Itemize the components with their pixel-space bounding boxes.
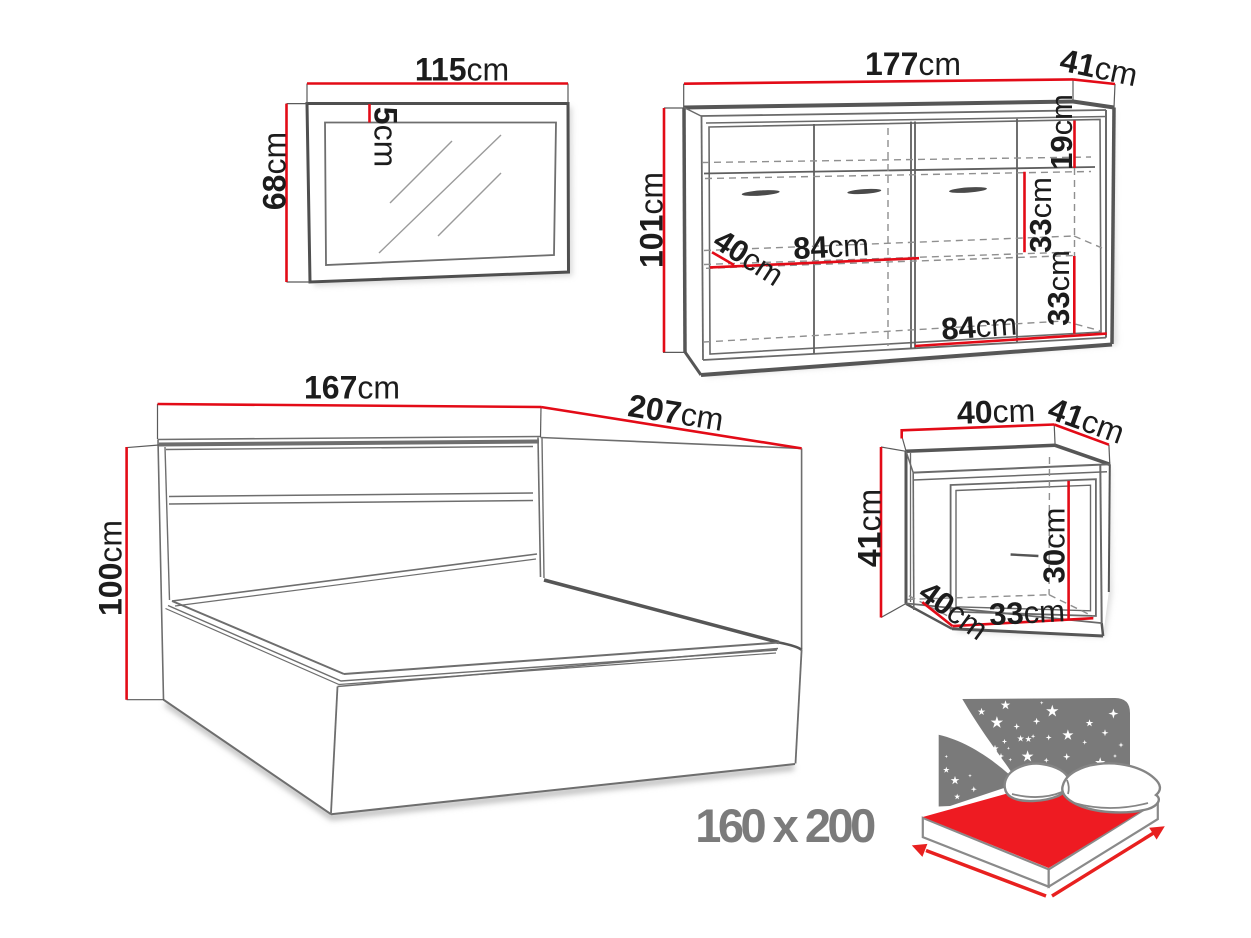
svg-text:84cm: 84cm — [792, 227, 870, 266]
svg-text:41cm: 41cm — [852, 489, 888, 567]
svg-text:101cm: 101cm — [634, 172, 670, 268]
svg-text:115cm: 115cm — [415, 52, 509, 88]
svg-text:30cm: 30cm — [1037, 508, 1072, 584]
svg-text:33cm: 33cm — [1041, 250, 1076, 326]
svg-text:167cm: 167cm — [304, 370, 400, 406]
svg-text:160 x 200: 160 x 200 — [695, 799, 875, 852]
svg-text:68cm: 68cm — [257, 132, 293, 210]
svg-text:84cm: 84cm — [940, 307, 1018, 347]
svg-text:40cm: 40cm — [956, 392, 1035, 431]
svg-text:19cm: 19cm — [1044, 94, 1079, 170]
svg-text:33cm: 33cm — [988, 593, 1066, 632]
svg-text:100cm: 100cm — [93, 520, 129, 616]
svg-text:5cm: 5cm — [367, 107, 403, 167]
svg-text:177cm: 177cm — [865, 46, 961, 82]
svg-text:33cm: 33cm — [1023, 177, 1058, 253]
